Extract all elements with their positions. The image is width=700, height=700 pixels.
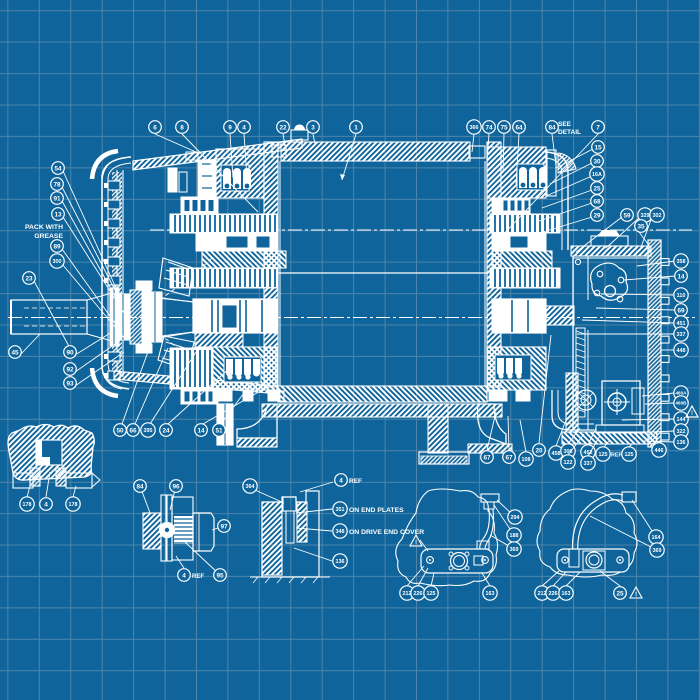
svg-text:SEE: SEE — [558, 121, 572, 128]
svg-text:108: 108 — [522, 457, 531, 463]
svg-text:7: 7 — [596, 124, 600, 131]
svg-text:GREASE: GREASE — [34, 233, 63, 240]
svg-text:302: 302 — [653, 213, 662, 219]
svg-text:3: 3 — [311, 124, 315, 131]
svg-text:188: 188 — [510, 533, 519, 539]
svg-text:14: 14 — [677, 273, 685, 280]
svg-text:84: 84 — [136, 483, 144, 490]
svg-text:25: 25 — [593, 185, 601, 192]
svg-text:1: 1 — [354, 124, 358, 131]
svg-text:92: 92 — [66, 366, 74, 373]
svg-text:122: 122 — [564, 460, 573, 466]
svg-text:458: 458 — [552, 451, 561, 457]
svg-text:DETAIL: DETAIL — [558, 129, 581, 136]
svg-text:!: ! — [691, 411, 693, 417]
svg-text:84: 84 — [548, 124, 556, 131]
svg-text:4: 4 — [44, 501, 48, 508]
svg-text:75: 75 — [500, 124, 508, 131]
svg-text:446: 446 — [655, 448, 664, 454]
svg-text:59: 59 — [623, 212, 631, 219]
svg-text:163: 163 — [486, 591, 495, 597]
svg-text:15: 15 — [594, 144, 602, 151]
svg-text:136: 136 — [677, 440, 686, 446]
svg-text:24: 24 — [162, 427, 170, 434]
svg-text:226: 226 — [414, 591, 423, 597]
svg-text:29: 29 — [593, 212, 601, 219]
svg-text:364: 364 — [246, 484, 255, 490]
svg-text:125: 125 — [427, 591, 436, 597]
svg-text:351: 351 — [336, 507, 345, 513]
svg-text:4: 4 — [242, 124, 246, 131]
svg-text:395: 395 — [144, 428, 153, 434]
svg-text:4: 4 — [182, 572, 186, 579]
svg-text:ON DRIVE END COVER: ON DRIVE END COVER — [349, 529, 424, 536]
svg-text:136: 136 — [336, 559, 345, 565]
svg-text:306: 306 — [564, 449, 573, 455]
svg-text:45: 45 — [11, 349, 19, 356]
svg-text:125: 125 — [599, 452, 608, 458]
svg-text:369: 369 — [510, 547, 519, 553]
svg-text:67: 67 — [483, 454, 491, 461]
svg-text:110: 110 — [677, 293, 686, 299]
svg-text:358: 358 — [677, 259, 686, 265]
svg-text:91: 91 — [53, 195, 61, 202]
svg-text:212: 212 — [538, 591, 547, 597]
svg-text:ON END PLATES: ON END PLATES — [349, 507, 404, 514]
svg-text:212: 212 — [403, 591, 412, 597]
svg-text:68: 68 — [593, 198, 601, 205]
svg-text:!: ! — [415, 540, 417, 546]
svg-text:96: 96 — [172, 483, 180, 490]
svg-text:144: 144 — [677, 417, 686, 423]
svg-text:125: 125 — [625, 452, 634, 458]
svg-text:25: 25 — [616, 590, 624, 597]
svg-text:322: 322 — [677, 429, 686, 435]
svg-text:74: 74 — [485, 124, 493, 131]
svg-text:50: 50 — [116, 427, 124, 434]
svg-text:448: 448 — [677, 348, 686, 354]
svg-text:178: 178 — [23, 502, 32, 508]
svg-text:8: 8 — [180, 124, 184, 131]
svg-text:95: 95 — [216, 572, 224, 579]
svg-text:54: 54 — [54, 165, 62, 172]
svg-text:PACK WITH: PACK WITH — [25, 224, 63, 231]
svg-text:337: 337 — [677, 332, 686, 338]
svg-text:35: 35 — [637, 223, 645, 230]
svg-text:348: 348 — [336, 529, 345, 535]
svg-text:78: 78 — [53, 181, 61, 188]
svg-text:226: 226 — [549, 591, 558, 597]
svg-text:51: 51 — [215, 427, 223, 434]
svg-text:14: 14 — [197, 427, 205, 434]
svg-text:300: 300 — [53, 259, 62, 265]
svg-text:22: 22 — [279, 124, 287, 131]
svg-text:451: 451 — [677, 321, 686, 327]
svg-text:6: 6 — [153, 124, 157, 131]
svg-text:REF: REF — [611, 453, 622, 459]
svg-text:294: 294 — [511, 515, 520, 521]
svg-text:164: 164 — [652, 535, 661, 541]
svg-text:23: 23 — [25, 275, 33, 282]
svg-text:13: 13 — [54, 211, 62, 218]
svg-text:178: 178 — [69, 502, 78, 508]
svg-text:329: 329 — [641, 213, 650, 219]
svg-text:16A: 16A — [592, 172, 602, 178]
svg-text:369: 369 — [653, 548, 662, 554]
svg-text:REF: REF — [192, 574, 204, 580]
svg-text:9: 9 — [228, 124, 232, 131]
svg-text:460A: 460A — [676, 391, 688, 396]
svg-text:30: 30 — [593, 158, 601, 165]
svg-text:89: 89 — [53, 243, 61, 250]
svg-text:460B: 460B — [676, 401, 688, 406]
svg-text:!: ! — [635, 592, 637, 598]
svg-text:337: 337 — [584, 461, 593, 467]
svg-text:69: 69 — [677, 307, 685, 314]
svg-text:163: 163 — [562, 591, 571, 597]
svg-text:64: 64 — [515, 124, 523, 131]
svg-text:REF: REF — [349, 478, 362, 485]
svg-text:97: 97 — [220, 523, 228, 530]
svg-text:20: 20 — [535, 447, 543, 454]
svg-text:4: 4 — [339, 477, 343, 484]
svg-text:66: 66 — [129, 427, 137, 434]
svg-text:366: 366 — [470, 125, 479, 131]
svg-text:93: 93 — [66, 380, 74, 387]
svg-text:67: 67 — [505, 454, 513, 461]
svg-text:90: 90 — [66, 349, 74, 356]
